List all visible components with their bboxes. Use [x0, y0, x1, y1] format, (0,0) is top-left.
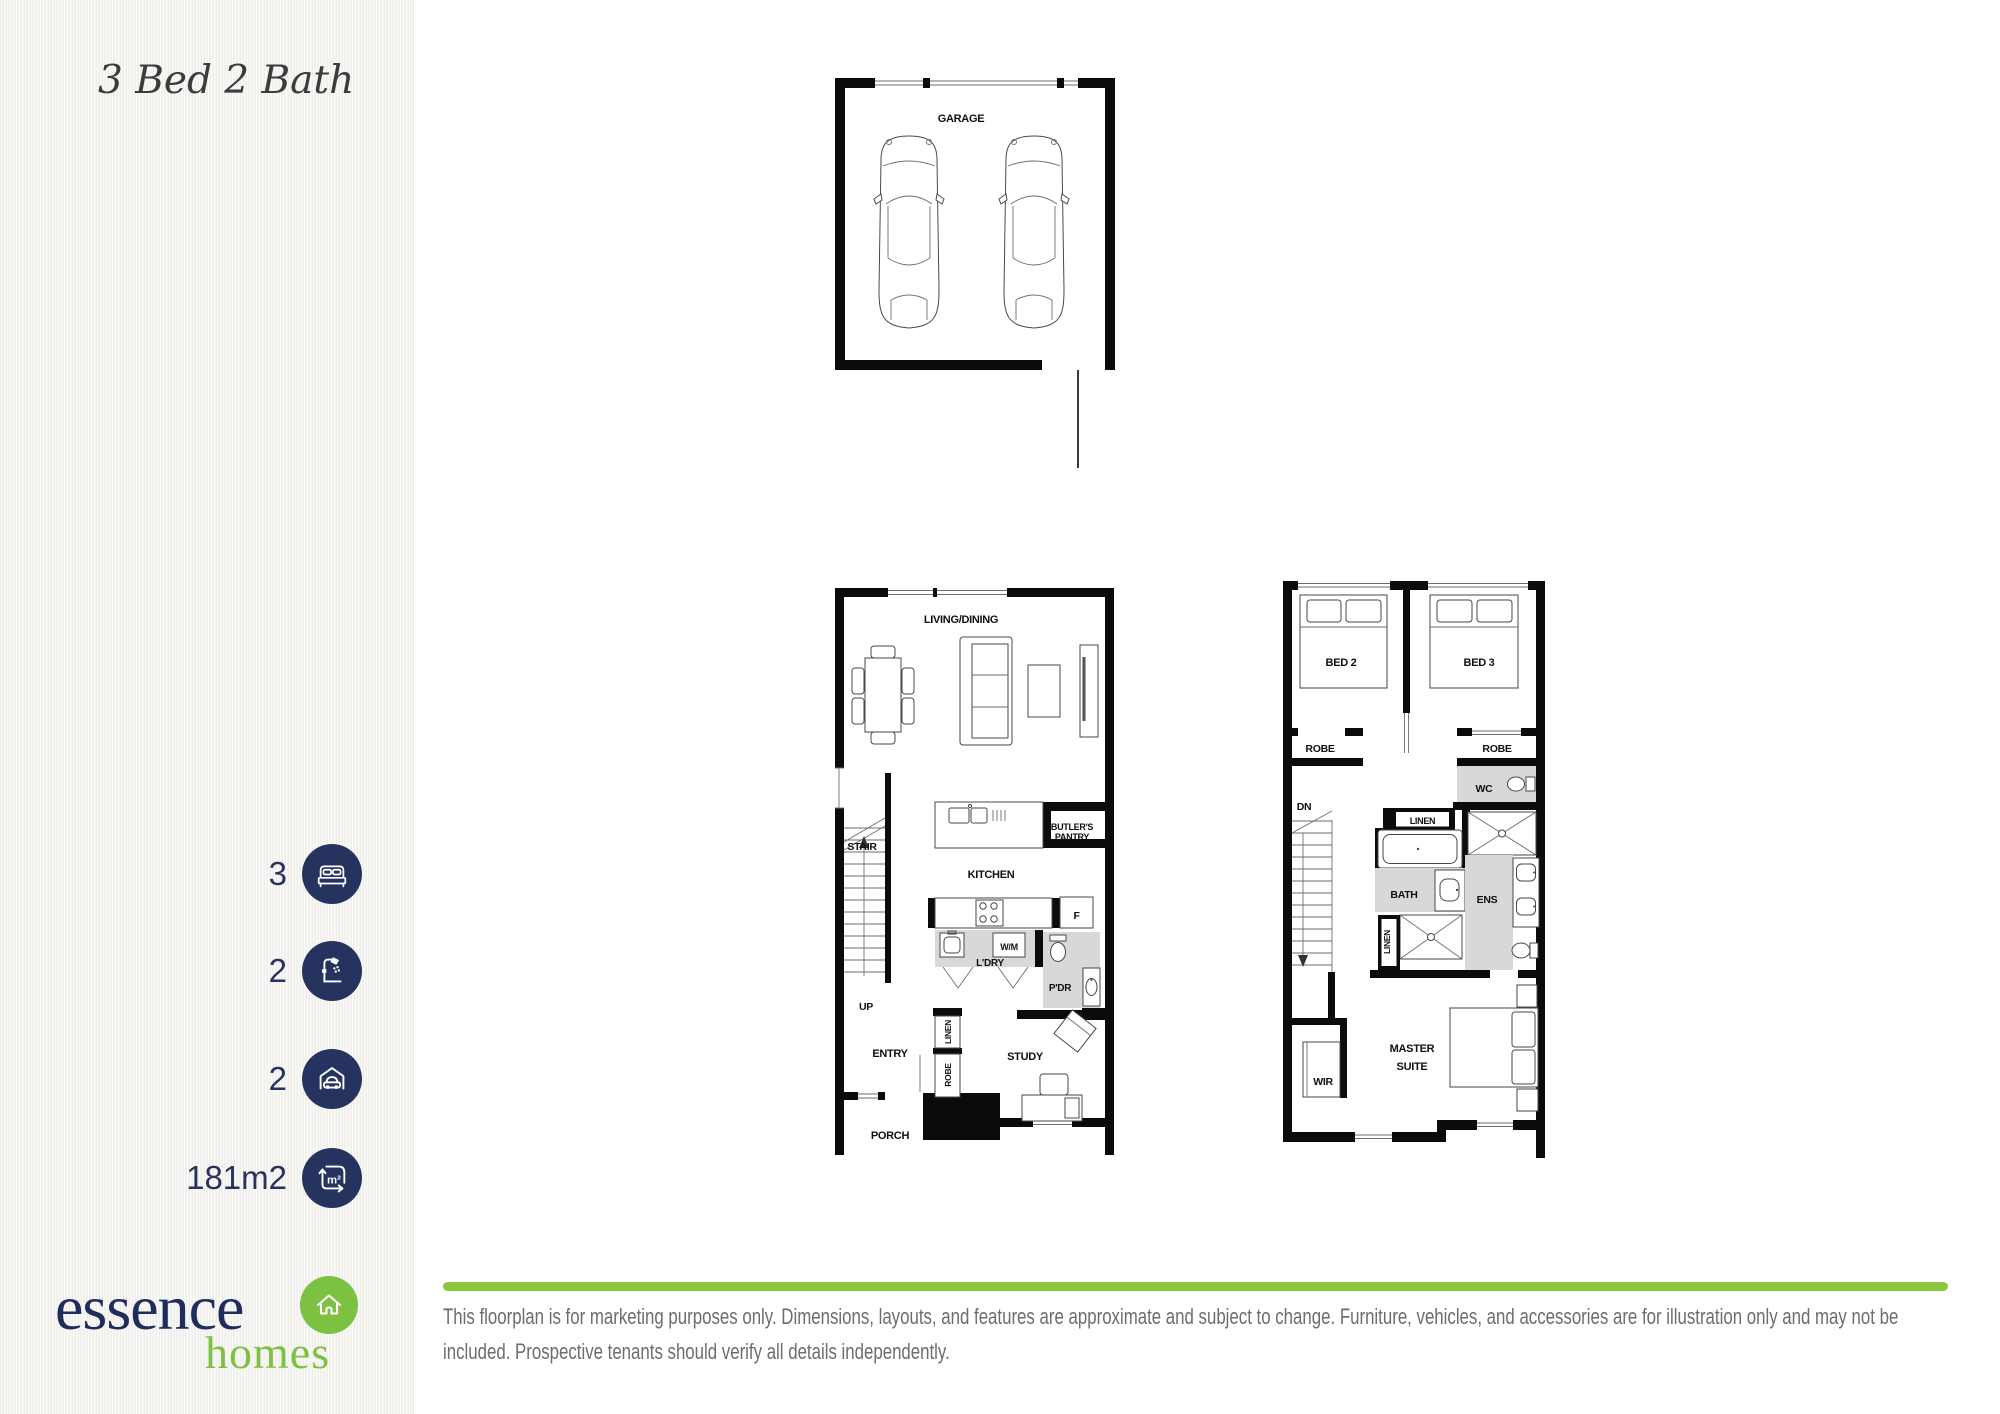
powder-room — [1043, 932, 1100, 1008]
bathrooms-count: 2 — [269, 952, 287, 990]
sofa — [960, 637, 1012, 745]
label-wm: W/M — [1000, 942, 1018, 952]
kitchen-island-sink — [935, 802, 1043, 848]
garage-count: 2 — [269, 1060, 287, 1098]
label-pdr: P'DR — [1049, 983, 1072, 994]
car-right — [999, 136, 1069, 328]
ensuite-vanity — [1513, 858, 1539, 927]
staircase-down — [1292, 811, 1332, 972]
garage-door — [875, 78, 1078, 88]
label-wir: WIR — [1313, 1076, 1333, 1088]
bed2-furniture — [1300, 595, 1387, 688]
label-bed2: BED 2 — [1326, 657, 1357, 669]
label-wc: WC — [1476, 783, 1494, 795]
floorplan-ground: LIVING/DINING STAIR UP KITCHEN BUTLER'S … — [833, 588, 1117, 1168]
green-divider-line — [443, 1282, 1948, 1291]
house-icon — [300, 1276, 358, 1334]
label-living-dining: LIVING/DINING — [924, 614, 998, 626]
bed3-furniture — [1430, 595, 1518, 688]
label-up: UP — [859, 1001, 873, 1013]
logo-sub-text: homes — [205, 1330, 330, 1376]
car-left — [874, 136, 944, 328]
garage-side-entry-wall — [1077, 370, 1079, 468]
bathtub — [1378, 830, 1462, 868]
coffee-table — [1028, 665, 1060, 717]
garage-car-icon — [302, 1049, 362, 1109]
label-robe-left: ROBE — [1305, 743, 1334, 755]
label-ldry: L'DRY — [976, 958, 1004, 969]
label-butlers-1: BUTLER'S — [1051, 822, 1094, 832]
bath-icon — [302, 941, 362, 1001]
floorplan-garage: GARAGE — [835, 75, 1117, 475]
wc-room — [1457, 766, 1536, 802]
bed-icon — [302, 844, 362, 904]
page-title: 3 Bed 2 Bath — [98, 58, 354, 103]
label-study: STUDY — [1007, 1051, 1044, 1063]
label-master-2: SUITE — [1397, 1061, 1428, 1073]
label-porch: PORCH — [871, 1130, 910, 1142]
area-icon: m² — [302, 1148, 362, 1208]
floorplan-page: { "header": { "title": "3 Bed 2 Bath" },… — [0, 0, 2000, 1414]
label-robe-right: ROBE — [1482, 743, 1511, 755]
label-linen-side: LINEN — [1382, 930, 1392, 954]
floorplan-upper: BED 2 BED 3 ROBE ROBE WC DN LINEN BATH E… — [1283, 581, 1551, 1161]
label-stair: STAIR — [847, 841, 877, 853]
wir-closet — [1303, 1042, 1340, 1097]
essence-homes-logo: essence homes — [55, 1272, 385, 1382]
spec-row-bathrooms: 2 — [120, 941, 362, 1001]
study-furniture — [1022, 1010, 1096, 1121]
master-bed — [1450, 985, 1538, 1111]
shower-top — [1468, 812, 1536, 855]
tv-unit — [1080, 645, 1098, 737]
label-bed3: BED 3 — [1464, 657, 1495, 669]
disclaimer-text: This floorplan is for marketing purposes… — [443, 1300, 1946, 1370]
label-ens: ENS — [1477, 894, 1498, 906]
ensuite-floor — [1465, 855, 1513, 970]
spec-row-bedrooms: 3 — [120, 844, 362, 904]
area-value: 181m2 — [186, 1159, 287, 1197]
label-robe: ROBE — [943, 1063, 953, 1087]
m2-glyph: m² — [327, 1175, 341, 1187]
label-fridge: F — [1073, 910, 1080, 922]
label-dn: DN — [1297, 801, 1312, 813]
bedrooms-count: 3 — [269, 855, 287, 893]
linen-robe-column — [920, 1016, 960, 1097]
ensuite-toilet — [1512, 943, 1538, 958]
label-butlers-2: PANTRY — [1055, 832, 1089, 842]
label-kitchen: KITCHEN — [968, 869, 1015, 881]
label-garage: GARAGE — [938, 113, 984, 125]
dining-table — [852, 646, 914, 744]
label-linen-top: LINEN — [1410, 816, 1436, 826]
label-entry: ENTRY — [872, 1048, 908, 1060]
kitchen-cooktop-bench — [935, 898, 1052, 928]
bath-basin — [1435, 870, 1465, 911]
spec-row-garage: 2 — [120, 1049, 362, 1109]
label-linen: LINEN — [943, 1020, 953, 1044]
shower-bottom — [1400, 915, 1462, 959]
label-bath: BATH — [1390, 889, 1417, 901]
label-master-1: MASTER — [1390, 1043, 1435, 1055]
spec-row-area: 181m2 m² — [120, 1148, 362, 1208]
